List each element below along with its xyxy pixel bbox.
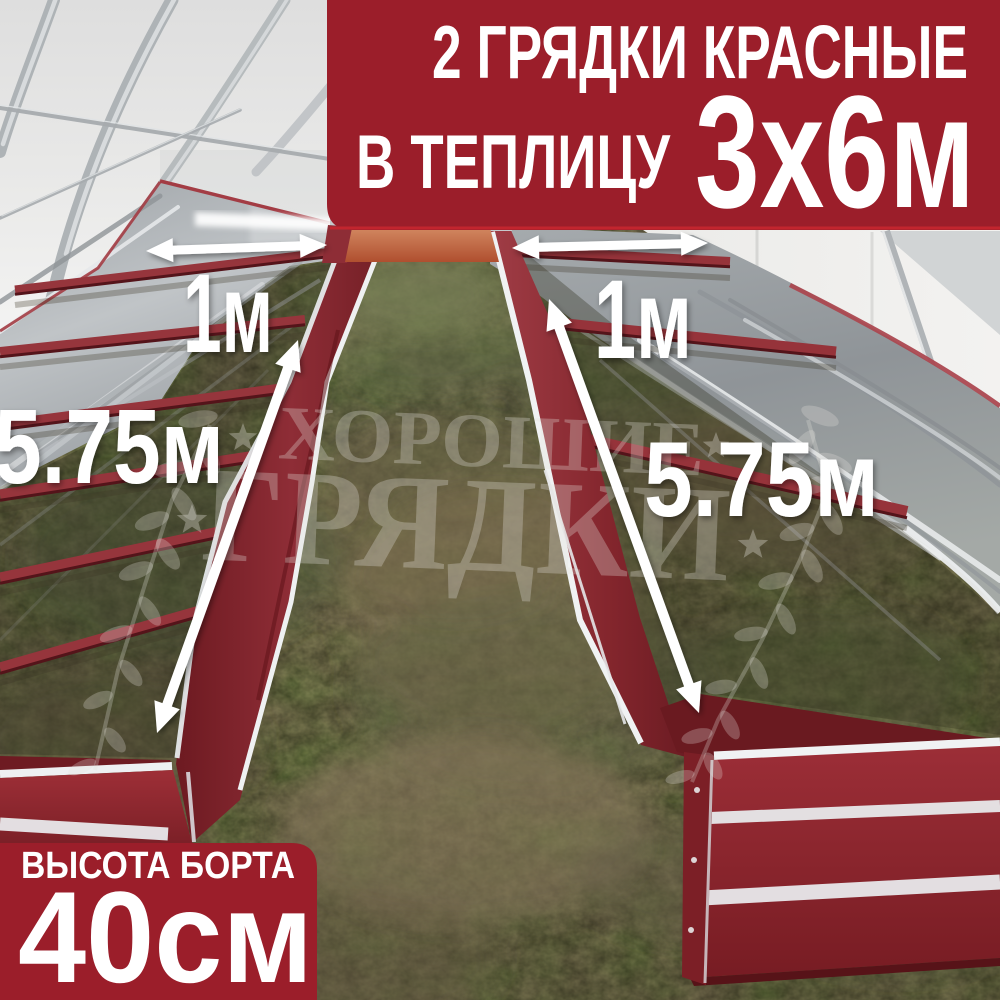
svg-text:1м: 1м	[594, 257, 692, 382]
svg-text:В ТЕПЛИЦУ: В ТЕПЛИЦУ	[356, 120, 671, 205]
svg-text:5.75м: 5.75м	[644, 419, 879, 539]
svg-text:1м: 1м	[183, 251, 273, 376]
svg-text:3х6м: 3х6м	[695, 62, 975, 241]
svg-text:5.75м: 5.75м	[0, 388, 224, 506]
svg-text:40см: 40см	[18, 864, 313, 1000]
